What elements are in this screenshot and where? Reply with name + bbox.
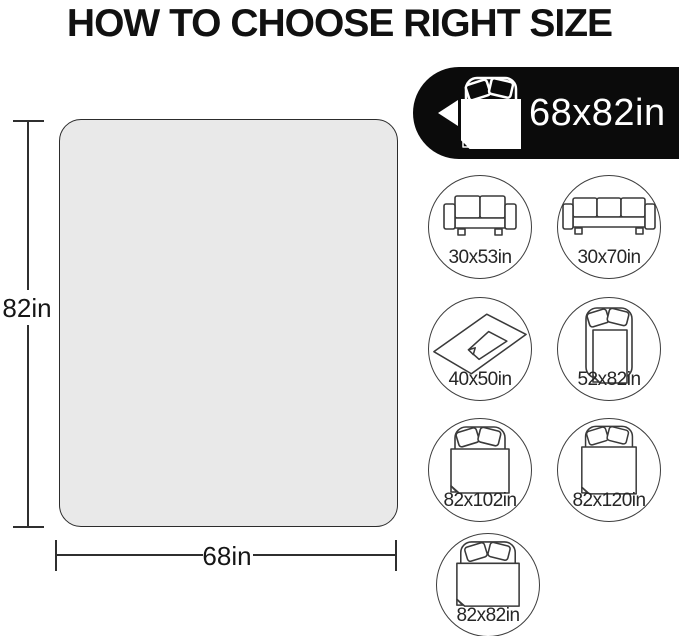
dimension-cap-bottom	[13, 526, 44, 528]
three-seat-sofa-icon	[561, 196, 657, 236]
blanket-diagram	[59, 119, 398, 527]
size-option-40x50: 40x50in	[428, 297, 532, 401]
size-option-label: 82x82in	[437, 605, 539, 627]
full-bed-blanket-icon	[448, 425, 512, 497]
loveseat-sofa-icon	[442, 194, 518, 236]
size-option-label: 82x120in	[558, 490, 660, 512]
size-option-30x70: 30x70in	[557, 175, 661, 279]
size-option-label: 40x50in	[429, 369, 531, 391]
flat-throw-blanket-icon	[432, 310, 528, 378]
size-option-label: 30x53in	[429, 247, 531, 269]
size-option-52x82: 52x82in	[557, 297, 661, 401]
left-arrow-icon	[438, 100, 458, 126]
dimension-line-left	[57, 554, 203, 556]
page-title: HOW TO CHOOSE RIGHT SIZE	[0, 0, 679, 48]
king-bed-blanket-icon	[579, 423, 639, 499]
dimension-line-lower	[27, 325, 29, 527]
selected-size-label: 68x82in	[529, 67, 666, 159]
size-option-82x102: 82x102in	[428, 418, 532, 522]
dimension-line-right	[253, 554, 396, 556]
size-option-30x53: 30x53in	[428, 175, 532, 279]
size-option-label: 82x102in	[429, 490, 531, 512]
size-option-82x120: 82x120in	[557, 418, 661, 522]
size-option-label: 52x82in	[558, 369, 660, 391]
height-dimension-label: 82in	[0, 295, 56, 321]
size-option-82x82: 82x82in	[436, 533, 540, 636]
dimension-tick-right	[395, 540, 397, 571]
bed-with-blanket-icon	[458, 74, 524, 152]
selected-size-banner: 68x82in	[413, 67, 679, 159]
size-guide-infographic: HOW TO CHOOSE RIGHT SIZE 82in 68in 68x82…	[0, 0, 679, 636]
width-dimension-label: 68in	[200, 543, 254, 569]
square-bed-blanket-icon	[454, 540, 522, 610]
dimension-line-upper	[27, 121, 29, 290]
size-option-label: 30x70in	[558, 247, 660, 269]
